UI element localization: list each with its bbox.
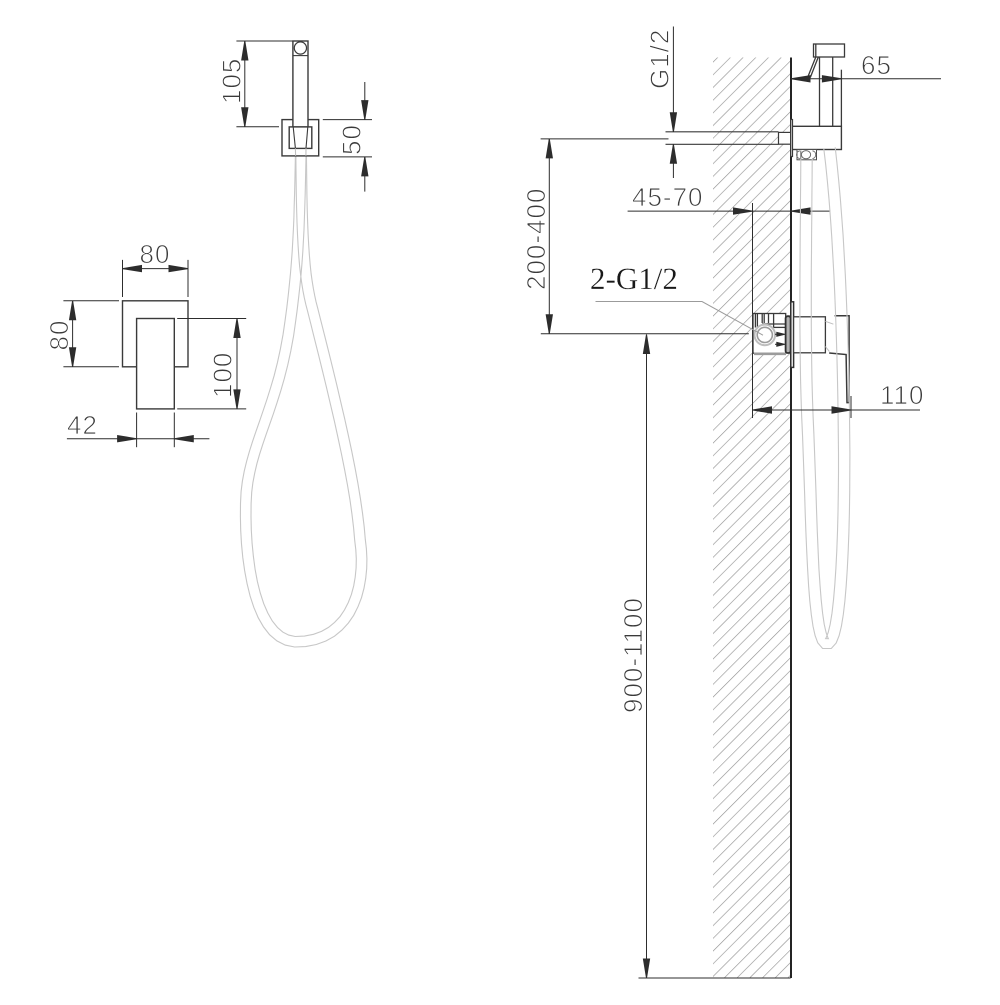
svg-text:2-G1/2: 2-G1/2 — [590, 261, 678, 296]
svg-text:65: 65 — [861, 50, 892, 80]
svg-text:105: 105 — [217, 58, 247, 104]
svg-text:80: 80 — [140, 239, 171, 269]
svg-text:900-1100: 900-1100 — [618, 597, 648, 713]
svg-text:G1/2: G1/2 — [645, 29, 675, 89]
svg-text:42: 42 — [67, 410, 98, 440]
svg-text:50: 50 — [337, 124, 367, 155]
svg-text:200-400: 200-400 — [521, 188, 551, 290]
svg-text:45-70: 45-70 — [632, 182, 704, 212]
svg-text:110: 110 — [880, 380, 924, 410]
svg-text:80: 80 — [44, 320, 74, 351]
svg-text:100: 100 — [208, 352, 238, 398]
